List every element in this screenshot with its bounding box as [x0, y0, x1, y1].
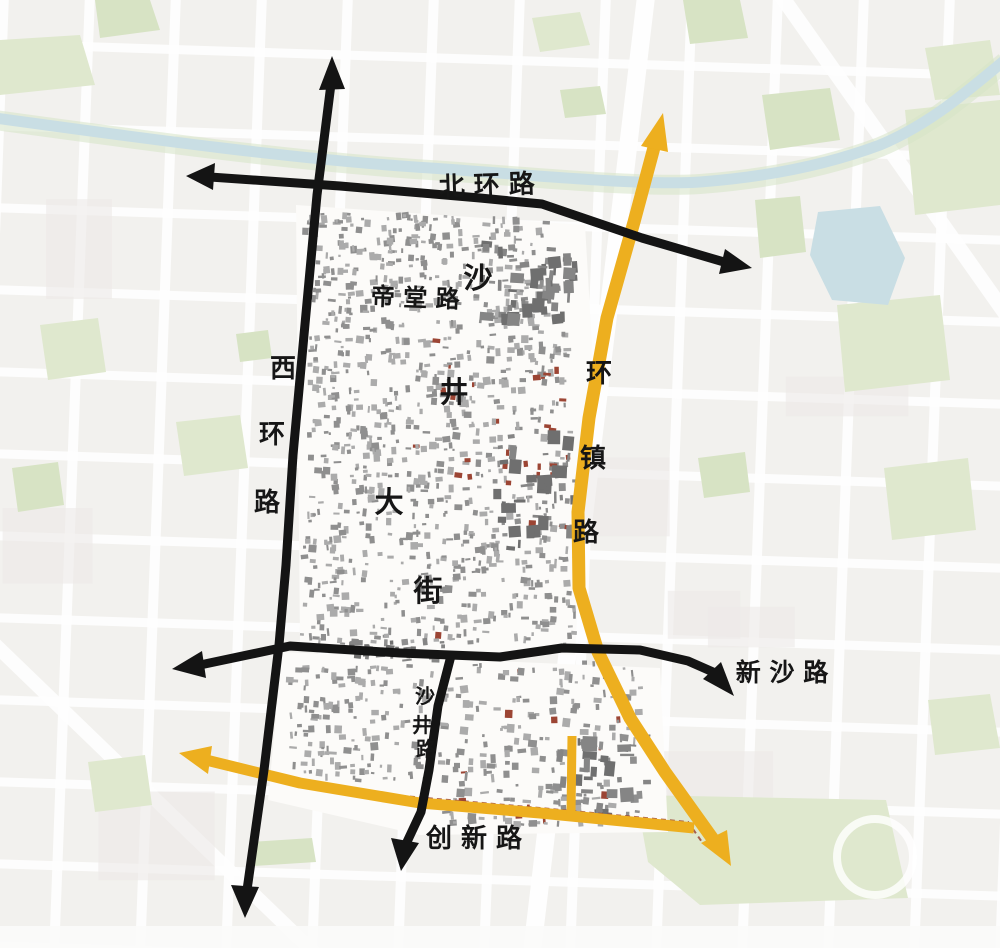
road-map-figure: 北 环 路 西 环 路 帝 堂 路 沙 井 大 街 环 镇 路 新 沙 路 沙 …	[0, 0, 1000, 948]
road-yellow-connector	[571, 736, 572, 816]
label-ditang-road: 帝 堂 路	[370, 282, 461, 313]
label-west-ring-char: 环	[259, 420, 285, 450]
label-chuangxin-road: 创 新 路	[425, 823, 523, 854]
label-shajing-street-char: 沙	[463, 261, 492, 295]
label-north-ring-road: 北 环 路	[438, 168, 536, 202]
bottom-strip	[0, 926, 1000, 948]
label-huanzhen-char: 镇	[580, 444, 606, 474]
label-shajing-road-char: 沙	[415, 684, 435, 708]
label-shajing-street-char: 街	[412, 574, 442, 608]
label-west-ring-char: 路	[254, 487, 281, 518]
label-huanzhen-char: 环	[586, 359, 612, 389]
label-shajing-street-char: 大	[374, 485, 403, 519]
label-shajing-road-char: 路	[416, 737, 437, 761]
label-xinsha-road: 新 沙 路	[736, 658, 829, 687]
label-huanzhen-char: 路	[573, 517, 600, 548]
label-shajing-road-char: 井	[412, 713, 432, 737]
label-shajing-street-char: 井	[439, 375, 468, 409]
label-west-ring-char: 西	[270, 354, 296, 384]
map-canvas: 北 环 路 西 环 路 帝 堂 路 沙 井 大 街 环 镇 路 新 沙 路 沙 …	[0, 0, 1000, 948]
